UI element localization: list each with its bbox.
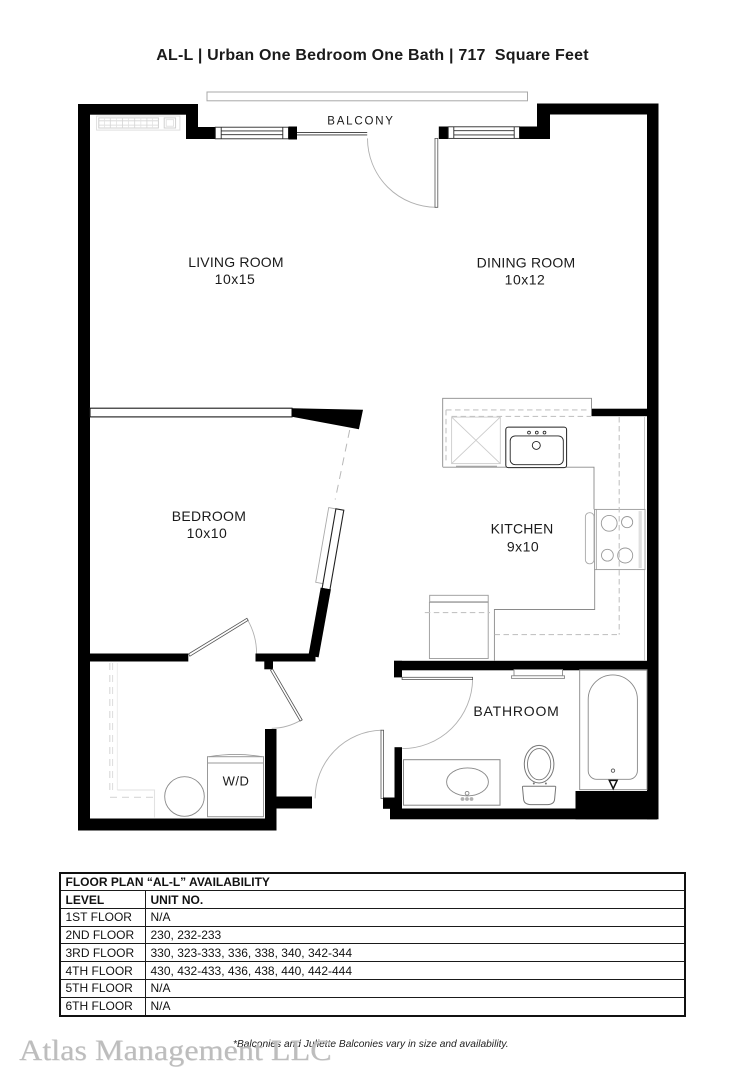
svg-text:10x12: 10x12: [505, 272, 546, 288]
svg-text:BATHROOM: BATHROOM: [473, 703, 559, 719]
svg-text:10x10: 10x10: [187, 525, 228, 541]
svg-text:10x15: 10x15: [215, 271, 256, 287]
svg-text:BALCONY: BALCONY: [327, 115, 395, 127]
svg-text:BEDROOM: BEDROOM: [172, 508, 246, 524]
svg-text:LIVING ROOM: LIVING ROOM: [188, 254, 284, 270]
svg-text:9x10: 9x10: [507, 538, 539, 554]
svg-text:W/D: W/D: [223, 774, 250, 789]
svg-text:KITCHEN: KITCHEN: [491, 520, 554, 536]
svg-text:DINING ROOM: DINING ROOM: [477, 255, 576, 271]
